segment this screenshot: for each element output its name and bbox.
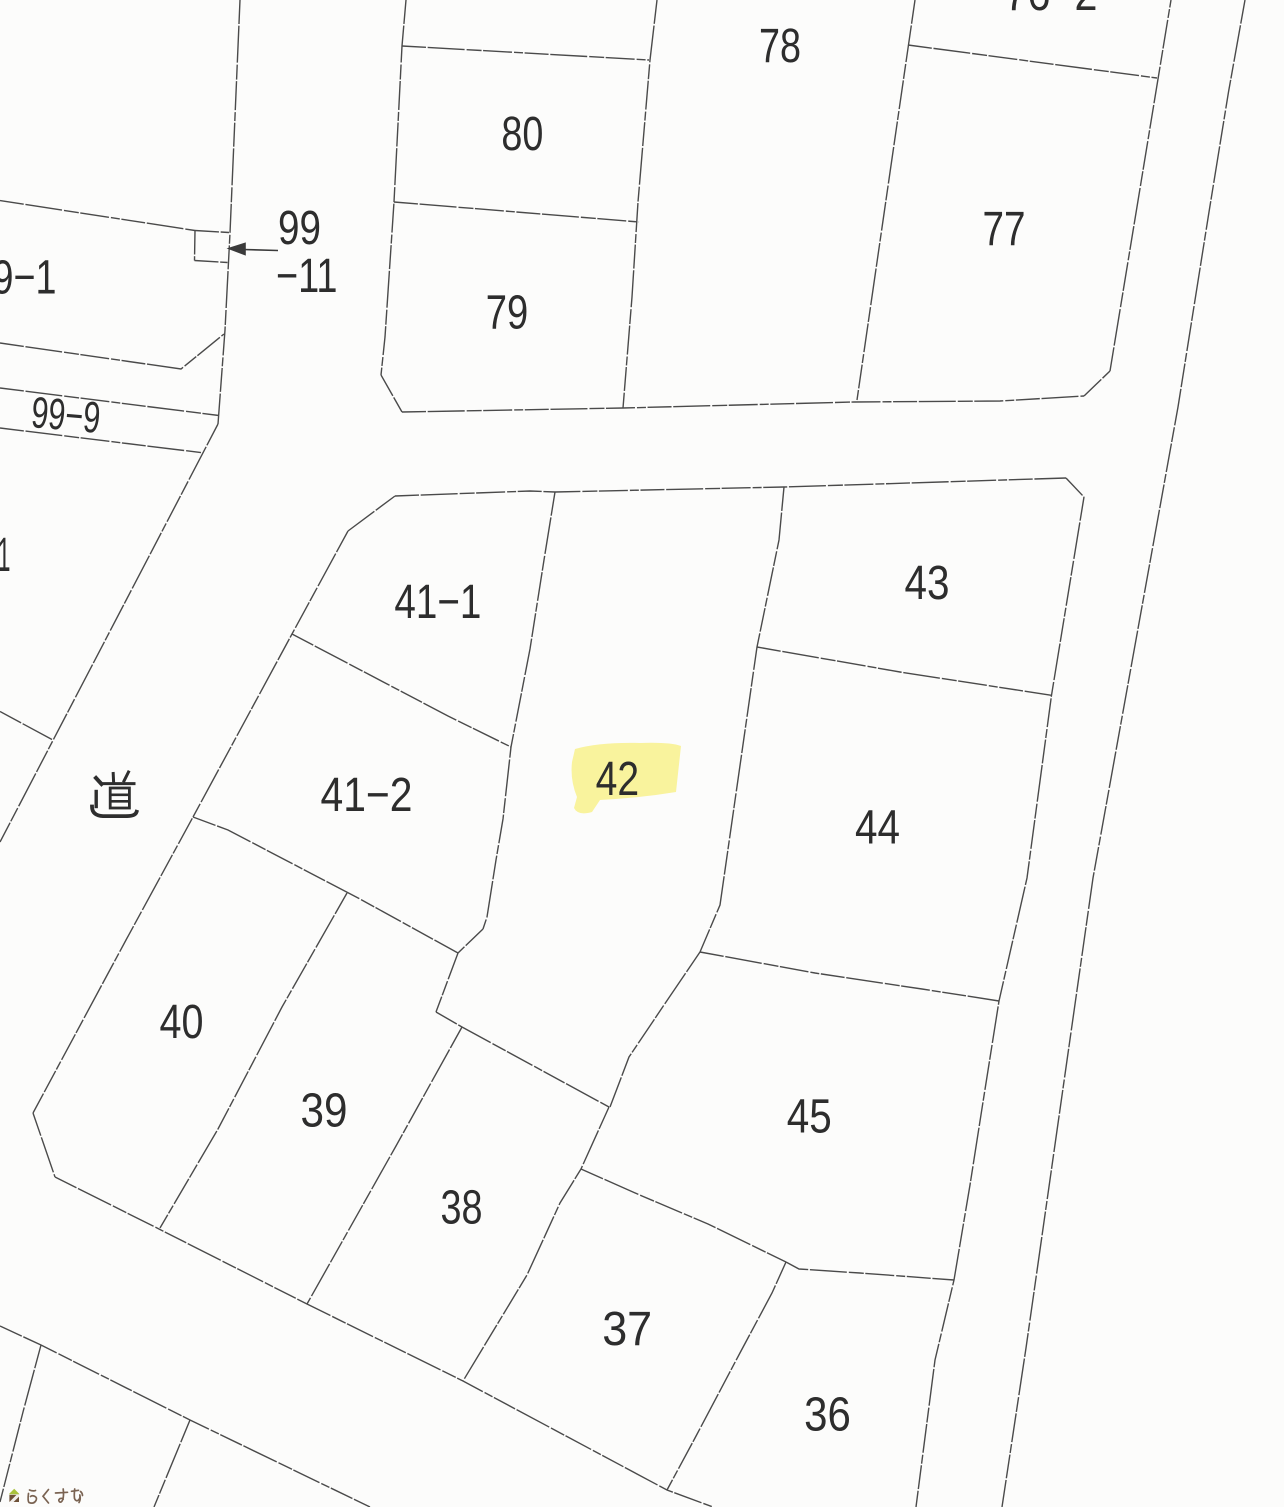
svg-text:79: 79 bbox=[486, 285, 529, 339]
svg-text:99−9: 99−9 bbox=[29, 388, 102, 443]
svg-text:80: 80 bbox=[501, 107, 543, 161]
svg-text:99: 99 bbox=[278, 201, 321, 255]
svg-text:39: 39 bbox=[301, 1083, 348, 1137]
svg-text:40: 40 bbox=[160, 995, 204, 1049]
svg-text:36: 36 bbox=[804, 1388, 851, 1442]
svg-text:42: 42 bbox=[596, 752, 640, 806]
svg-text:9−1: 9−1 bbox=[0, 250, 57, 304]
svg-text:−11: −11 bbox=[276, 249, 338, 303]
svg-text:76−2: 76−2 bbox=[1005, 0, 1098, 21]
svg-text:78: 78 bbox=[759, 19, 801, 73]
svg-text:1: 1 bbox=[0, 528, 11, 582]
svg-text:43: 43 bbox=[905, 556, 950, 610]
svg-text:45: 45 bbox=[787, 1089, 832, 1143]
svg-text:41−2: 41−2 bbox=[321, 768, 413, 822]
svg-text:41−1: 41−1 bbox=[394, 575, 481, 629]
svg-text:37: 37 bbox=[602, 1302, 652, 1356]
svg-text:77: 77 bbox=[983, 202, 1026, 256]
svg-text:44: 44 bbox=[855, 800, 900, 854]
svg-text:38: 38 bbox=[441, 1181, 483, 1235]
